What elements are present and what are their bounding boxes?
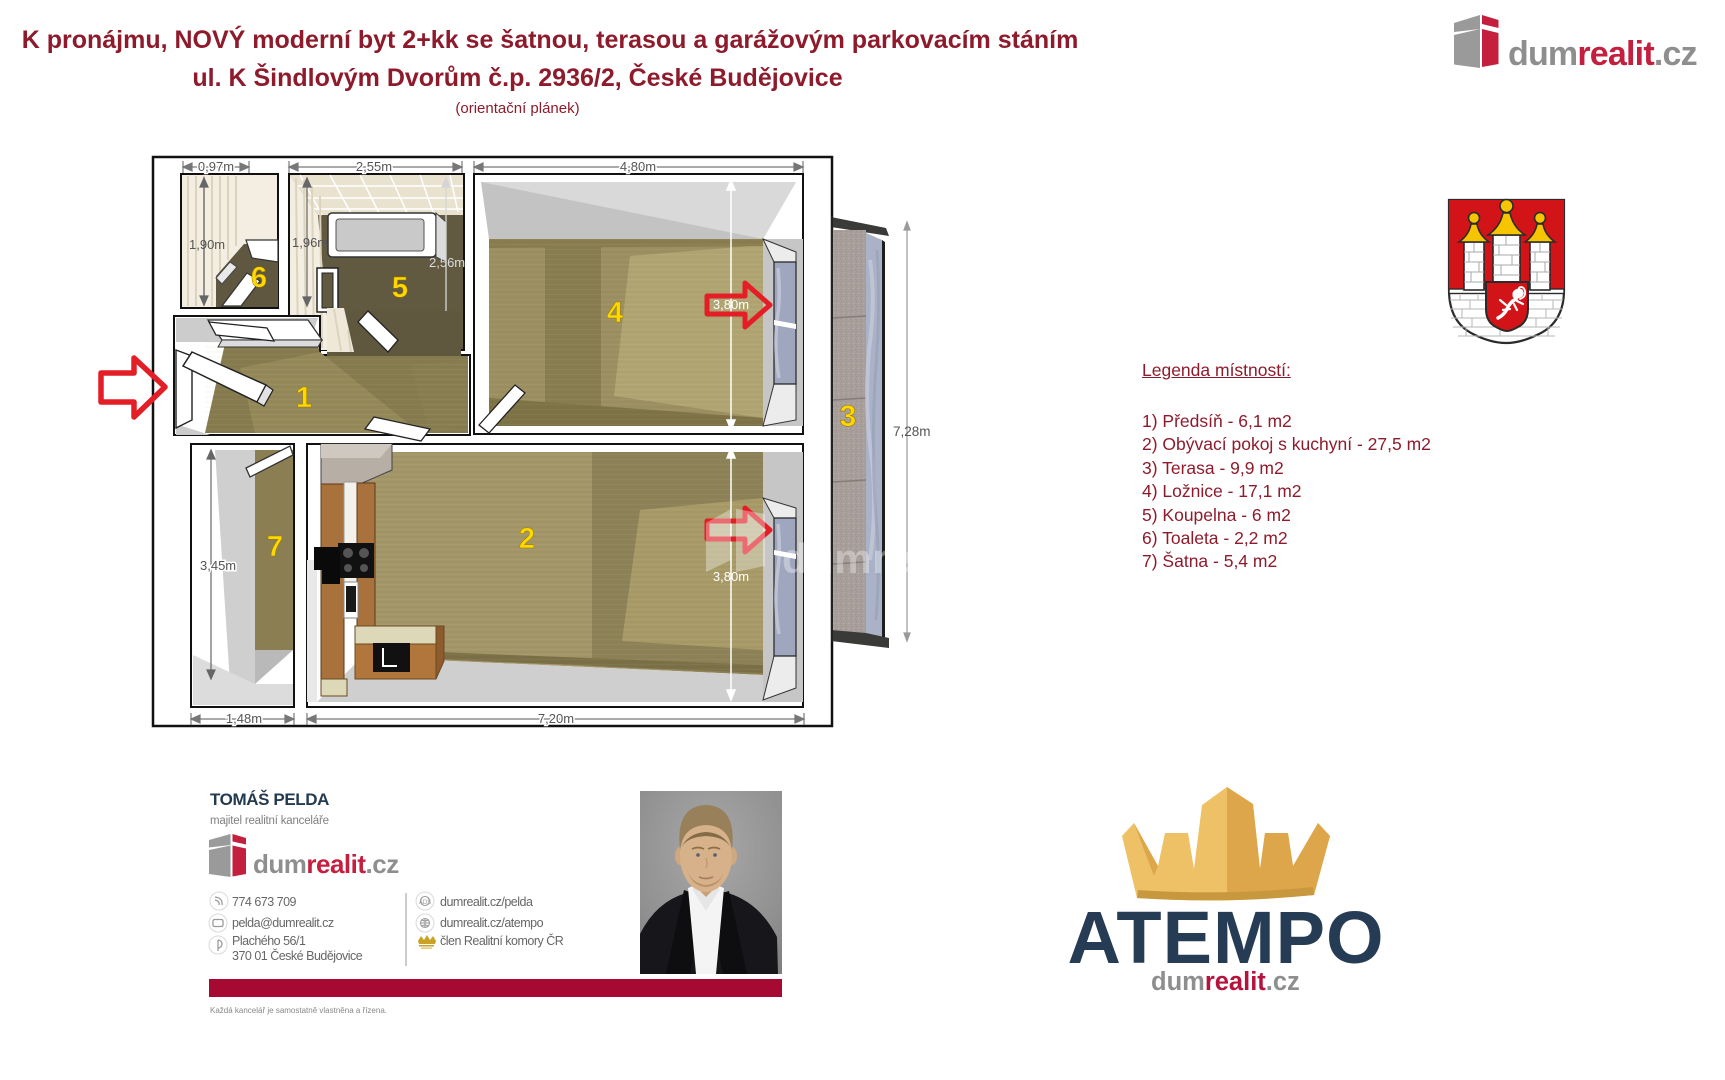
svg-text:3,80m: 3,80m: [713, 297, 749, 312]
svg-text:2: 2: [519, 523, 535, 555]
svg-text:0,97m: 0,97m: [198, 159, 234, 174]
svg-text:ADS: ADS: [419, 900, 431, 906]
svg-text:dumrealit.cz: dumrealit.cz: [1508, 35, 1697, 73]
svg-text:3: 3: [840, 400, 857, 433]
svg-text:dumrealit.cz: dumrealit.cz: [253, 849, 399, 879]
svg-text:7,28m: 7,28m: [893, 424, 931, 439]
svg-text:1,90m: 1,90m: [189, 237, 225, 252]
svg-text:2,56m: 2,56m: [429, 255, 465, 270]
svg-text:2,55m: 2,55m: [356, 159, 392, 174]
svg-text:dumrealit.cz: dumrealit.cz: [782, 535, 1033, 582]
svg-text:1,96m: 1,96m: [292, 235, 328, 250]
svg-text:3,45m: 3,45m: [200, 558, 236, 573]
svg-text:5: 5: [392, 272, 408, 304]
svg-text:3,80m: 3,80m: [713, 569, 749, 584]
svg-text:7,20m: 7,20m: [538, 711, 574, 726]
svg-text:1: 1: [296, 382, 312, 414]
svg-text:7: 7: [267, 531, 283, 563]
svg-text:1,48m: 1,48m: [226, 711, 262, 726]
svg-text:4,80m: 4,80m: [620, 159, 656, 174]
svg-text:4: 4: [607, 297, 623, 329]
svg-text:6: 6: [251, 262, 267, 294]
